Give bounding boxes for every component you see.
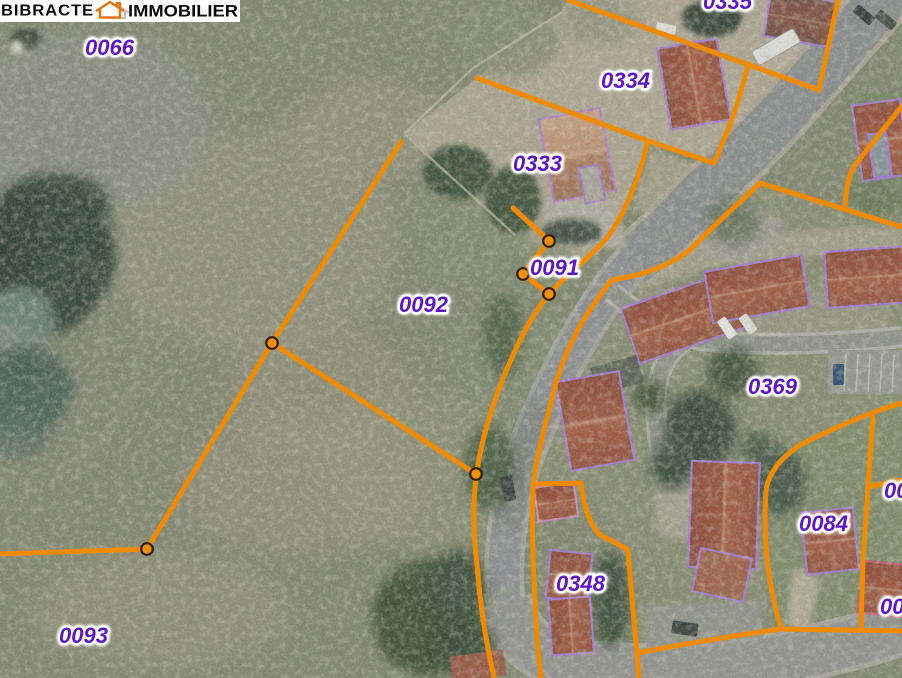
svg-text:0092: 0092	[399, 292, 449, 317]
svg-text:0093: 0093	[59, 623, 108, 648]
svg-text:0333: 0333	[513, 151, 562, 176]
svg-text:0085: 0085	[884, 478, 902, 503]
svg-text:IMMOBILIER: IMMOBILIER	[128, 2, 238, 21]
svg-text:0334: 0334	[601, 68, 650, 93]
svg-text:0086: 0086	[880, 594, 902, 619]
svg-text:0335: 0335	[703, 0, 753, 14]
svg-text:0066: 0066	[85, 35, 135, 60]
svg-text:0369: 0369	[748, 374, 798, 399]
svg-text:0091: 0091	[530, 255, 579, 280]
svg-text:0084: 0084	[799, 511, 848, 536]
svg-text:0348: 0348	[556, 571, 606, 596]
svg-text:BIBRACTE: BIBRACTE	[1, 3, 94, 20]
